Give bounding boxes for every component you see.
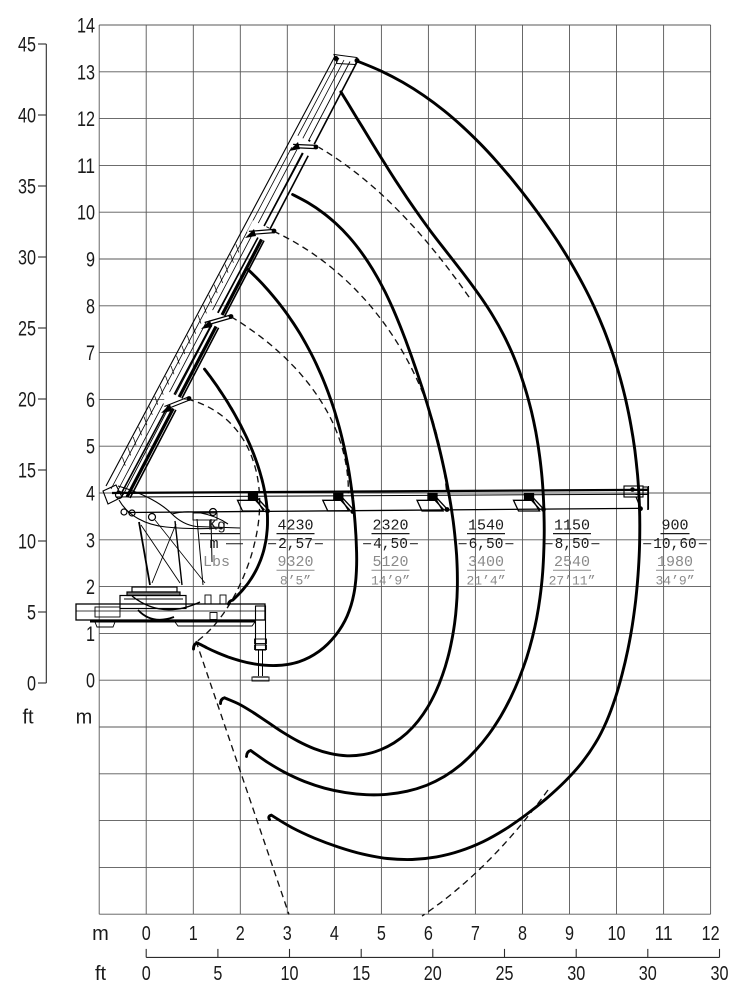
svg-text:9320: 9320 [277,554,313,571]
svg-text:ft: ft [95,963,107,985]
svg-text:4230: 4230 [277,518,313,535]
svg-text:4,50: 4,50 [373,537,408,553]
svg-text:2: 2 [86,576,95,599]
svg-text:2540: 2540 [554,554,590,571]
svg-text:5: 5 [86,436,95,459]
svg-text:11: 11 [77,155,95,178]
svg-text:3400: 3400 [468,554,504,571]
svg-text:2320: 2320 [372,518,408,535]
svg-text:11: 11 [655,923,673,945]
svg-text:2,57: 2,57 [278,537,313,553]
svg-text:14: 14 [77,15,95,38]
svg-text:2: 2 [236,923,245,945]
svg-text:0: 0 [86,670,95,693]
svg-text:8: 8 [86,295,95,318]
svg-text:30: 30 [567,963,585,985]
svg-text:900: 900 [661,518,688,535]
svg-text:10: 10 [18,531,36,554]
svg-text:20: 20 [18,389,36,412]
svg-text:m: m [92,923,109,945]
svg-text:9: 9 [86,249,95,272]
svg-text:25: 25 [496,963,514,985]
svg-text:7: 7 [86,342,95,365]
svg-text:14’9”: 14’9” [371,574,410,589]
svg-text:ft: ft [22,707,34,729]
svg-text:27’11”: 27’11” [549,574,596,589]
svg-text:Lbs: Lbs [203,554,230,571]
svg-text:8’5”: 8’5” [280,574,311,589]
svg-text:5120: 5120 [372,554,408,571]
svg-text:25: 25 [18,318,36,341]
svg-text:8,50: 8,50 [555,537,590,553]
svg-text:20: 20 [424,963,442,985]
svg-text:10,60: 10,60 [653,537,697,553]
svg-text:0: 0 [142,923,151,945]
svg-text:5: 5 [27,602,36,625]
svg-text:15: 15 [18,460,36,483]
svg-text:1540: 1540 [468,518,504,535]
svg-text:30: 30 [639,963,657,985]
svg-text:10: 10 [281,963,299,985]
svg-text:3: 3 [283,923,292,945]
svg-text:0: 0 [27,673,36,696]
svg-text:9: 9 [565,923,574,945]
svg-text:13: 13 [77,61,95,84]
svg-text:m: m [76,707,93,729]
svg-text:12: 12 [702,923,720,945]
svg-text:m: m [209,536,218,553]
svg-text:1150: 1150 [554,518,590,535]
svg-text:0: 0 [142,963,151,985]
svg-text:45: 45 [18,34,36,57]
svg-text:1980: 1980 [657,554,693,571]
svg-text:Kg: Kg [208,518,226,535]
svg-text:6,50: 6,50 [469,537,504,553]
svg-text:5: 5 [213,963,222,985]
svg-text:30: 30 [711,963,729,985]
svg-text:7: 7 [471,923,480,945]
svg-text:21’4”: 21’4” [466,574,505,589]
svg-text:6: 6 [86,389,95,412]
svg-text:34’9”: 34’9” [655,574,694,589]
svg-text:30: 30 [18,247,36,270]
svg-text:12: 12 [77,108,95,131]
svg-text:3: 3 [86,529,95,552]
svg-text:15: 15 [352,963,370,985]
svg-text:40: 40 [18,105,36,128]
svg-text:35: 35 [18,176,36,199]
svg-text:10: 10 [77,202,95,225]
svg-text:10: 10 [608,923,626,945]
svg-text:1: 1 [86,623,95,646]
svg-text:6: 6 [424,923,433,945]
svg-text:8: 8 [518,923,527,945]
svg-text:1: 1 [189,923,198,945]
svg-text:5: 5 [377,923,386,945]
svg-text:4: 4 [86,483,95,506]
svg-text:4: 4 [330,923,339,945]
